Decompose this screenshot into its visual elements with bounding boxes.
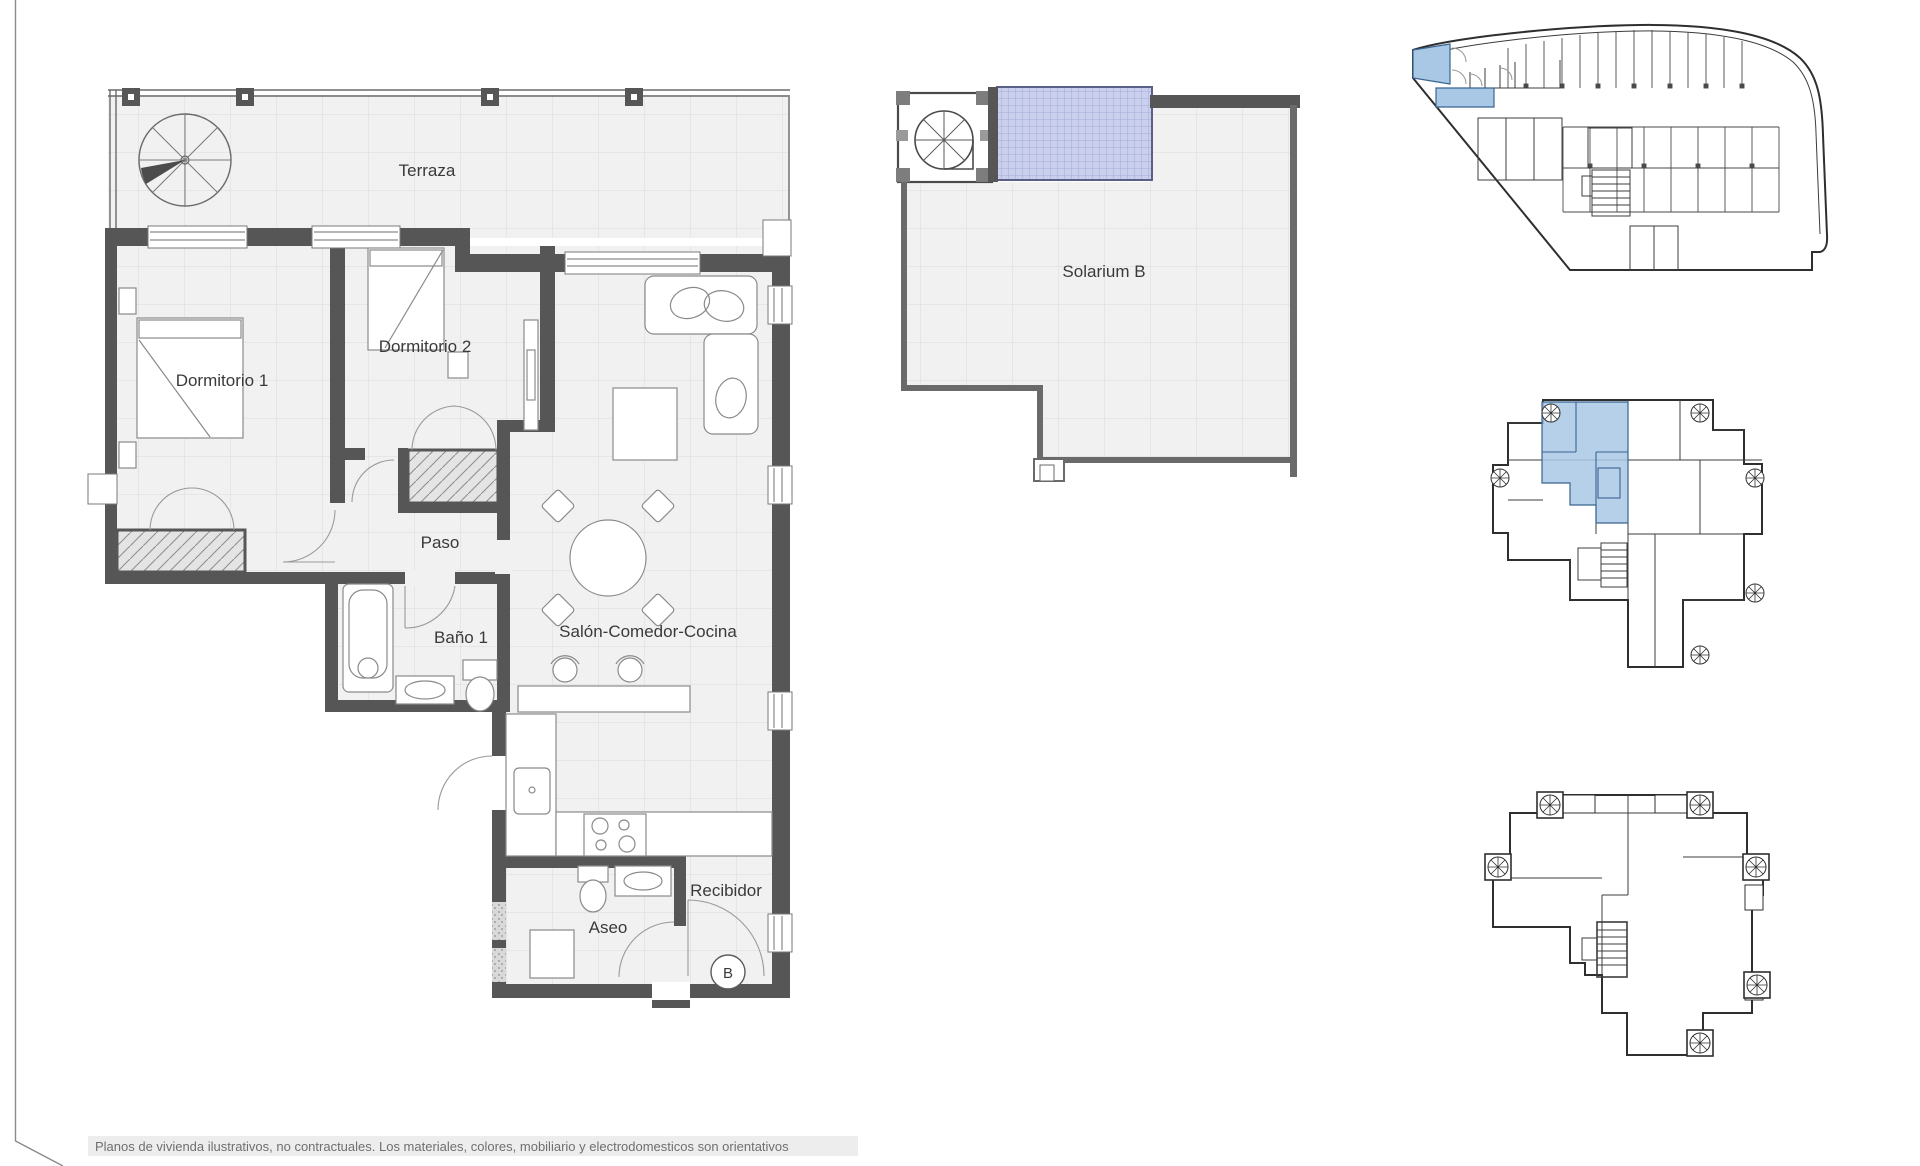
unit-marker-letter: B (723, 965, 733, 982)
disclaimer: Planos de vivienda ilustrativos, no cont… (88, 1136, 858, 1156)
garage-unit-parking (1436, 88, 1494, 107)
room-label-paso: Paso (421, 533, 460, 552)
room-label-terraza: Terraza (399, 161, 456, 180)
floor-key-plan (1491, 400, 1764, 667)
disclaimer-text: Planos de vivienda ilustrativos, no cont… (95, 1139, 789, 1154)
solarium-stair-enclosure (896, 91, 992, 182)
room-label-recibidor: Recibidor (690, 881, 762, 900)
garage-key-plan (1413, 25, 1827, 270)
coffee-table (613, 388, 677, 460)
tv-unit (524, 320, 538, 430)
sheet-border (16, 0, 64, 1166)
roof-key-plan (1485, 792, 1770, 1056)
garage-outline (1413, 25, 1827, 270)
solarium-spiral-stair (915, 111, 973, 169)
room-label-solarium: Solarium B (1062, 262, 1145, 281)
room-label-dormitorio-1: Dormitorio 1 (176, 371, 269, 390)
floor-plan-sheet: B Terraza Dormitorio 1 Dormitorio 2 Paso… (0, 0, 1920, 1166)
main-floor-plan: B Terraza Dormitorio 1 Dormitorio 2 Paso… (88, 88, 792, 1008)
spiral-staircase (139, 114, 231, 206)
room-label-bano-1: Baño 1 (434, 628, 488, 647)
solarium-plan: Solarium B (896, 87, 1300, 481)
room-label-dormitorio-2: Dormitorio 2 (379, 337, 472, 356)
pergola (997, 87, 1152, 180)
room-label-aseo: Aseo (589, 918, 628, 937)
garage-unit-storeroom (1413, 44, 1450, 84)
room-label-salon: Salón-Comedor-Cocina (559, 622, 737, 641)
unit-marker: B (711, 955, 745, 989)
